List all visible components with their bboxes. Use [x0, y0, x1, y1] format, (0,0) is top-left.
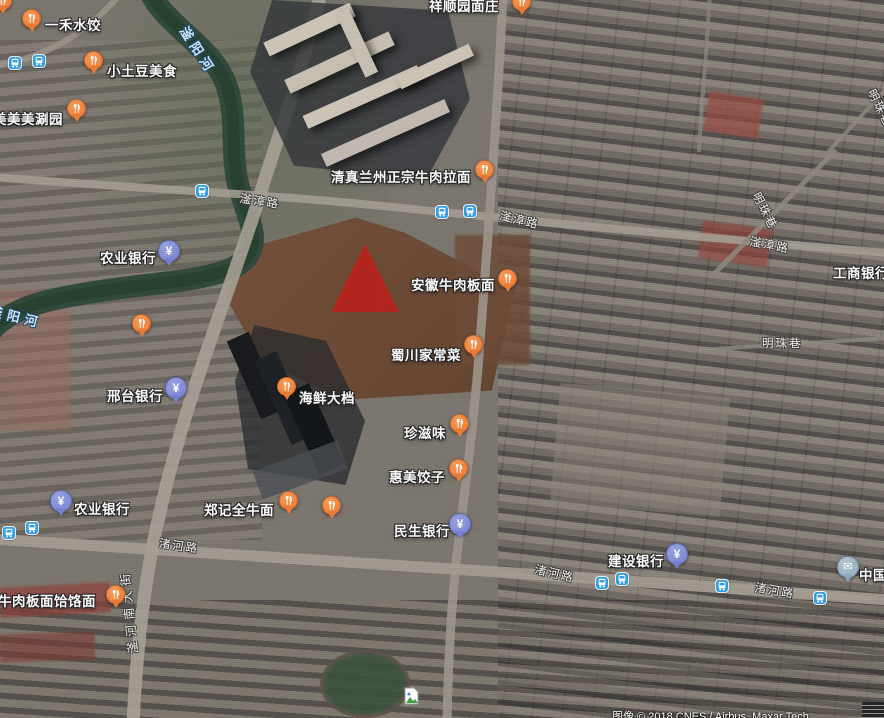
- poi-label[interactable]: 安徽牛肉板面: [411, 274, 495, 294]
- bank-pin[interactable]: ¥: [158, 240, 180, 262]
- restaurant-pin-icon: [464, 335, 483, 354]
- bus-glyph: [3, 527, 15, 539]
- bank-pin-icon: ¥: [158, 240, 180, 262]
- broken-image-icon: [404, 687, 419, 710]
- bus-stop-icon[interactable]: [196, 185, 208, 197]
- restaurant-pin[interactable]: [22, 9, 41, 28]
- bank-pin[interactable]: ¥: [50, 490, 72, 512]
- bus-stop-icon[interactable]: [596, 577, 608, 589]
- bus-glyph: [436, 206, 448, 218]
- poi-label[interactable]: 清真兰州正宗牛肉拉面: [331, 166, 471, 186]
- restaurant-pin-icon: [67, 99, 86, 118]
- bus-glyph: [596, 577, 608, 589]
- bus-glyph: [33, 55, 45, 67]
- restaurant-pin-icon: [0, 0, 12, 10]
- bus-glyph: [616, 573, 628, 585]
- bus-glyph: [9, 57, 21, 69]
- restaurant-pin[interactable]: [106, 585, 125, 604]
- dropped-marker[interactable]: [331, 244, 399, 312]
- yen-icon: ¥: [58, 495, 65, 507]
- fuyang-river: [0, 0, 253, 330]
- restaurant-pin[interactable]: [512, 0, 531, 11]
- restaurant-pin-icon: [512, 0, 531, 11]
- poi-label[interactable]: 中国邮政: [859, 564, 884, 584]
- restaurant-pin[interactable]: [449, 459, 468, 478]
- restaurant-pin-icon: [498, 269, 517, 288]
- restaurant-pin[interactable]: [67, 99, 86, 118]
- poi-label[interactable]: 农业银行: [74, 498, 130, 518]
- restaurant-pin[interactable]: [0, 0, 12, 10]
- restaurant-pin-icon: [84, 51, 103, 70]
- yen-icon: ¥: [173, 382, 180, 394]
- bus-glyph: [814, 592, 826, 604]
- bank-pin-icon: ¥: [666, 543, 688, 565]
- bank-pin-icon: ¥: [449, 513, 471, 535]
- lane-right-vertical: [699, 0, 710, 152]
- poi-label[interactable]: 小土豆美食: [107, 60, 177, 80]
- poi-label[interactable]: 建设银行: [608, 550, 664, 570]
- restaurant-pin[interactable]: [322, 496, 341, 515]
- restaurant-pin[interactable]: [450, 414, 469, 433]
- poi-label[interactable]: 祥顺园面庄: [429, 0, 499, 15]
- restaurant-pin-icon: [22, 9, 41, 28]
- bus-glyph: [716, 580, 728, 592]
- yen-icon: ¥: [457, 518, 464, 530]
- post-pin-icon: ✉: [837, 556, 859, 578]
- bank-pin-icon: ¥: [165, 377, 187, 399]
- restaurant-pin-icon: [475, 160, 494, 179]
- yen-icon: ¥: [166, 245, 173, 257]
- bus-glyph: [464, 205, 476, 217]
- poi-label[interactable]: 一禾水饺: [45, 14, 101, 34]
- bus-stop-icon[interactable]: [33, 55, 45, 67]
- restaurant-pin-icon: [449, 459, 468, 478]
- bank-pin[interactable]: ¥: [449, 513, 471, 535]
- bus-stop-icon[interactable]: [3, 527, 15, 539]
- attribution-badge: [862, 702, 884, 718]
- poi-label[interactable]: 珍滋味: [404, 422, 446, 442]
- restaurant-pin-icon: [132, 314, 151, 333]
- restaurant-pin[interactable]: [464, 335, 483, 354]
- restaurant-pin[interactable]: [84, 51, 103, 70]
- poi-label[interactable]: 农业银行: [100, 247, 156, 267]
- bank-pin[interactable]: ¥: [666, 543, 688, 565]
- poi-label[interactable]: 工商银行: [833, 262, 884, 282]
- bus-glyph: [196, 185, 208, 197]
- poi-label[interactable]: 海鲜大档: [299, 387, 355, 407]
- restaurant-pin-icon: [450, 414, 469, 433]
- bus-glyph: [26, 522, 38, 534]
- bus-stop-icon[interactable]: [9, 57, 21, 69]
- bus-stop-icon[interactable]: [436, 206, 448, 218]
- restaurant-pin-icon: [322, 496, 341, 515]
- poi-label[interactable]: 惠美饺子: [389, 466, 445, 486]
- poi-label[interactable]: 民生银行: [394, 520, 450, 540]
- poi-label[interactable]: 蜀川家常菜: [391, 344, 461, 364]
- bus-stop-icon[interactable]: [26, 522, 38, 534]
- bus-stop-icon[interactable]: [616, 573, 628, 585]
- poi-label[interactable]: 邢台银行: [107, 385, 163, 405]
- yen-icon: ¥: [674, 548, 681, 560]
- bank-pin-icon: ¥: [50, 490, 72, 512]
- poi-label[interactable]: 美美美涮园: [0, 108, 63, 128]
- poi-label[interactable]: 徽牛肉板面饸饹面: [0, 590, 96, 610]
- restaurant-pin[interactable]: [498, 269, 517, 288]
- bank-pin[interactable]: ¥: [165, 377, 187, 399]
- restaurant-pin-icon: [279, 491, 298, 510]
- road-label: 明珠巷: [762, 335, 803, 351]
- restaurant-pin[interactable]: [132, 314, 151, 333]
- restaurant-pin[interactable]: [279, 491, 298, 510]
- envelope-icon: ✉: [843, 562, 852, 573]
- bus-stop-icon[interactable]: [716, 580, 728, 592]
- post-pin[interactable]: ✉: [837, 556, 859, 578]
- map-attribution: 图像 © 2018 CNES / Airbus, Maxar Tech: [612, 708, 809, 718]
- bus-stop-icon[interactable]: [464, 205, 476, 217]
- restaurant-pin-icon: [106, 585, 125, 604]
- bus-stop-icon[interactable]: [814, 592, 826, 604]
- restaurant-pin-icon: [277, 377, 296, 396]
- poi-label[interactable]: 郑记全牛面: [204, 499, 274, 519]
- restaurant-pin[interactable]: [277, 377, 296, 396]
- restaurant-pin[interactable]: [475, 160, 494, 179]
- satellite-map-canvas[interactable]: 图像 © 2018 CNES / Airbus, Maxar Tech 祥顺园面…: [0, 0, 884, 718]
